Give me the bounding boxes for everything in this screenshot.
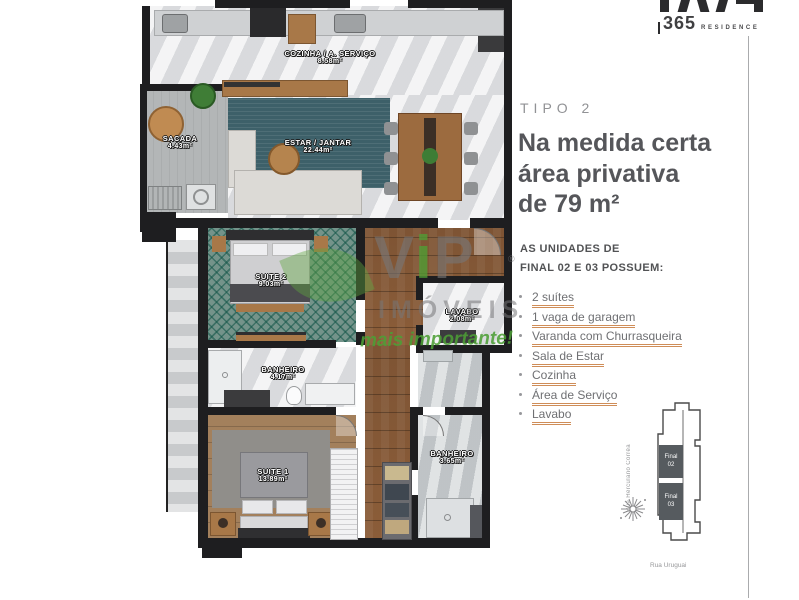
wall bbox=[416, 276, 512, 283]
feature-label: 1 vaga de garagem bbox=[532, 310, 635, 328]
unit-label: Final bbox=[664, 494, 677, 501]
wall bbox=[416, 283, 423, 300]
footprint-outline bbox=[645, 400, 715, 560]
feature-label: Varanda com Churrasqueira bbox=[532, 329, 682, 347]
service-counter bbox=[423, 350, 453, 362]
plant-pot bbox=[190, 83, 216, 109]
wall bbox=[410, 407, 423, 415]
wall bbox=[416, 325, 423, 345]
dining-chair bbox=[384, 152, 398, 165]
room-name: LAVABO bbox=[446, 307, 479, 316]
nightstand bbox=[314, 236, 328, 252]
suite2-headboard bbox=[226, 230, 314, 240]
wall bbox=[470, 218, 512, 228]
balcony-bench bbox=[148, 186, 182, 210]
room-area: 9.03m² bbox=[255, 281, 286, 290]
unit-final-03: Final 03 bbox=[659, 483, 683, 520]
subheading: AS UNIDADES DE FINAL 02 E 03 POSSUEM: bbox=[520, 240, 664, 279]
wall bbox=[140, 86, 147, 232]
lavabo-sink bbox=[440, 330, 476, 343]
wall bbox=[198, 228, 208, 548]
room-label-cozinha: COZINHA / A. SERVIÇO 8.58m² bbox=[284, 49, 375, 67]
subheading-line: AS UNIDADES DE bbox=[520, 240, 664, 259]
feature-label: Lavabo bbox=[532, 407, 571, 425]
lamp bbox=[316, 518, 326, 528]
headline: Na medida certa área privativa de 79 m² bbox=[518, 128, 748, 220]
room-name: BANHEIRO bbox=[430, 449, 473, 458]
pillow bbox=[272, 243, 307, 256]
room-area: 2.08m² bbox=[446, 316, 479, 325]
building-footprint: Final 02 Final 03 bbox=[645, 400, 715, 560]
slatted-closet bbox=[330, 448, 358, 540]
wall bbox=[202, 548, 242, 558]
bullet-icon bbox=[519, 334, 522, 337]
utility-shaft bbox=[142, 212, 176, 242]
bullet-icon bbox=[519, 412, 522, 415]
dining-chair bbox=[464, 152, 478, 165]
feature-item: Cozinha bbox=[532, 368, 682, 388]
headline-line: Na medida certa bbox=[518, 128, 748, 159]
type-label: TIPO 2 bbox=[520, 100, 594, 116]
room-area: 3.65m² bbox=[430, 458, 473, 467]
shower-drain bbox=[222, 372, 228, 378]
room-label-estar: ESTAR / JANTAR 22.44m² bbox=[285, 138, 352, 156]
service-sink bbox=[334, 14, 366, 33]
vertical-divider bbox=[748, 36, 749, 598]
kitchen-sink bbox=[162, 14, 188, 33]
headline-line: de 79 m² bbox=[518, 189, 748, 220]
logo-name: RESIDENCE bbox=[701, 25, 759, 31]
room-label-sacada: SACADA 4.43m² bbox=[163, 134, 197, 152]
feature-item: Sala de Estar bbox=[532, 349, 682, 369]
bar-shelf bbox=[224, 82, 280, 87]
wall bbox=[482, 345, 490, 548]
room-area: 22.44m² bbox=[285, 147, 352, 156]
street-name-bottom: Rua Uruguai bbox=[650, 562, 687, 569]
bath-cabinet bbox=[224, 390, 270, 407]
room-name: SACADA bbox=[163, 134, 197, 143]
feature-label: 2 suítes bbox=[532, 290, 574, 308]
room-name: SUITE 1 bbox=[257, 467, 288, 476]
bullet-icon bbox=[519, 295, 522, 298]
toilet bbox=[286, 386, 302, 405]
bullet-icon bbox=[519, 354, 522, 357]
bullet-icon bbox=[519, 315, 522, 318]
room-area: 8.58m² bbox=[284, 58, 375, 67]
feature-label: Área de Serviço bbox=[532, 388, 617, 406]
feature-label: Sala de Estar bbox=[532, 349, 604, 367]
centerpiece-plant bbox=[422, 148, 438, 164]
feature-item: 1 vaga de garagem bbox=[532, 310, 682, 330]
cutting-board bbox=[288, 14, 316, 44]
room-label-lavabo: LAVABO 2.08m² bbox=[446, 307, 479, 325]
logo-tick bbox=[658, 22, 660, 34]
exterior-corridor bbox=[166, 240, 200, 512]
unit-final-02: Final 02 bbox=[659, 445, 683, 478]
kitchen-counter bbox=[154, 10, 504, 36]
floor-plan: COZINHA / A. SERVIÇO 8.58m² SACADA 4.43m… bbox=[140, 0, 512, 558]
unit-label: Final bbox=[664, 454, 677, 461]
nightstand bbox=[212, 236, 226, 252]
feature-label: Cozinha bbox=[532, 368, 576, 386]
subheading-line: FINAL 02 E 03 POSSUEM: bbox=[520, 259, 664, 278]
room-area: 13.89m² bbox=[257, 476, 288, 485]
wardrobe-item bbox=[385, 484, 409, 500]
dining-chair bbox=[464, 122, 478, 135]
room-name: SUITE 2 bbox=[255, 272, 286, 281]
room-name: ESTAR / JANTAR bbox=[285, 138, 352, 147]
feature-item: Varanda com Churrasqueira bbox=[532, 329, 682, 349]
bullet-icon bbox=[519, 393, 522, 396]
dining-chair bbox=[464, 182, 478, 195]
feature-item: 2 suítes bbox=[532, 290, 682, 310]
room-area: 4.43m² bbox=[163, 143, 197, 152]
wardrobe-item bbox=[385, 520, 409, 534]
wall bbox=[408, 0, 512, 8]
room-label-suite1: SUITE 1 13.89m² bbox=[257, 467, 288, 485]
lamp bbox=[218, 518, 228, 528]
cooktop bbox=[250, 8, 286, 37]
room-label-banheiro2: BANHEIRO 3.65m² bbox=[430, 449, 473, 467]
room-name: COZINHA / A. SERVIÇO bbox=[284, 49, 375, 58]
vanity bbox=[305, 383, 355, 405]
wall bbox=[142, 218, 438, 228]
wall bbox=[140, 84, 232, 91]
pillow bbox=[233, 243, 268, 256]
wall bbox=[445, 407, 490, 415]
wall bbox=[356, 228, 365, 300]
room-area: 4.17m² bbox=[261, 374, 304, 383]
wall bbox=[356, 332, 365, 345]
wall bbox=[203, 407, 336, 415]
shower-drain bbox=[444, 514, 451, 521]
dining-chair bbox=[384, 182, 398, 195]
wardrobe-item bbox=[385, 503, 409, 517]
unit-label: 03 bbox=[668, 502, 675, 509]
logo-number: 365 bbox=[663, 13, 696, 34]
logo-cropped-word bbox=[658, 0, 768, 12]
shower-glass bbox=[470, 505, 482, 538]
wall bbox=[203, 340, 336, 348]
pillow bbox=[242, 500, 273, 514]
bullet-icon bbox=[519, 373, 522, 376]
room-name: BANHEIRO bbox=[261, 365, 304, 374]
wall bbox=[215, 0, 350, 8]
suite2-bench bbox=[236, 304, 304, 312]
wardrobe-item bbox=[385, 466, 409, 480]
room-label-banheiro1: BANHEIRO 4.17m² bbox=[261, 365, 304, 383]
suite1-headboard bbox=[238, 528, 310, 538]
headline-line: área privativa bbox=[518, 159, 748, 190]
suite2-dresser bbox=[236, 332, 306, 341]
wall bbox=[142, 6, 150, 88]
dining-chair bbox=[384, 122, 398, 135]
compass-icon bbox=[618, 494, 648, 529]
wall bbox=[482, 345, 512, 353]
pillow bbox=[276, 500, 307, 514]
brand-logo: 365 RESIDENCE bbox=[658, 0, 768, 34]
washer-door bbox=[193, 189, 209, 205]
room-label-suite2: SUITE 2 9.03m² bbox=[255, 272, 286, 290]
unit-label: 02 bbox=[668, 462, 675, 469]
wall bbox=[504, 0, 512, 352]
sofa bbox=[234, 170, 362, 215]
